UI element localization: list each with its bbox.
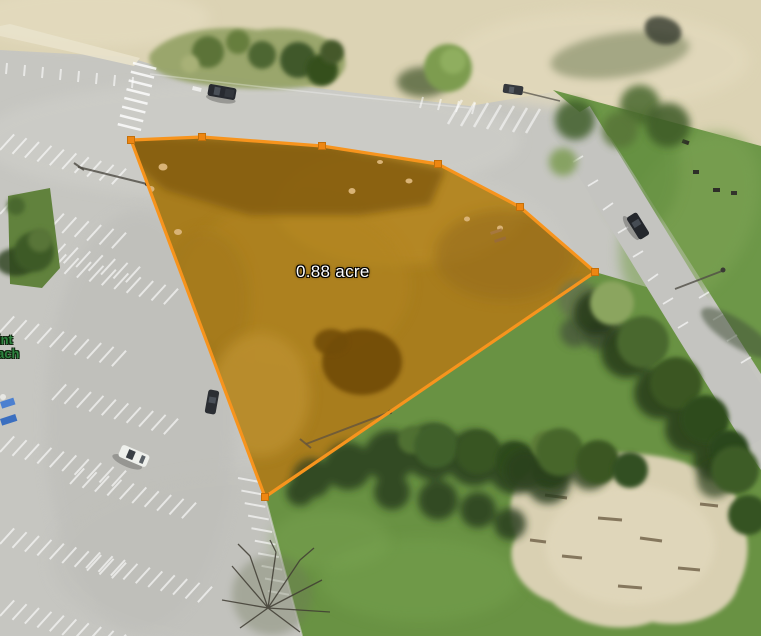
vertex-marker[interactable] bbox=[128, 137, 135, 144]
aerial-imagery bbox=[0, 0, 761, 636]
vertex-marker[interactable] bbox=[199, 134, 206, 141]
bench bbox=[731, 191, 737, 195]
aerial-map[interactable]: 0.88 acre int ach bbox=[0, 0, 761, 636]
vertex-marker[interactable] bbox=[517, 204, 524, 211]
vertex-marker[interactable] bbox=[592, 269, 599, 276]
vertex-marker[interactable] bbox=[319, 143, 326, 150]
bench bbox=[693, 170, 699, 174]
parking-island bbox=[0, 188, 60, 288]
vertex-marker[interactable] bbox=[262, 494, 269, 501]
bench bbox=[713, 188, 720, 192]
vertex-marker[interactable] bbox=[435, 161, 442, 168]
